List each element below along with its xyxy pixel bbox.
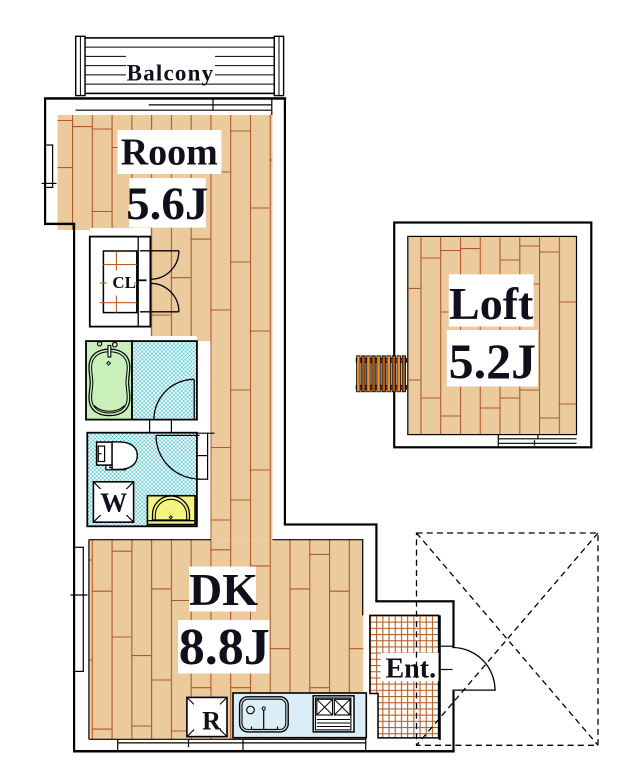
svg-text:Balcony: Balcony bbox=[127, 60, 215, 85]
svg-text:R: R bbox=[202, 707, 221, 736]
svg-text:Loft: Loft bbox=[449, 278, 534, 329]
svg-text:8.8J: 8.8J bbox=[179, 619, 270, 676]
svg-text:Room: Room bbox=[121, 131, 218, 173]
svg-text:5.6J: 5.6J bbox=[126, 178, 208, 230]
svg-text:Ent.: Ent. bbox=[386, 653, 437, 684]
svg-text:5.2J: 5.2J bbox=[449, 333, 537, 389]
svg-text:CL: CL bbox=[112, 273, 136, 292]
svg-text:W: W bbox=[100, 488, 127, 518]
svg-text:DK: DK bbox=[189, 564, 258, 615]
